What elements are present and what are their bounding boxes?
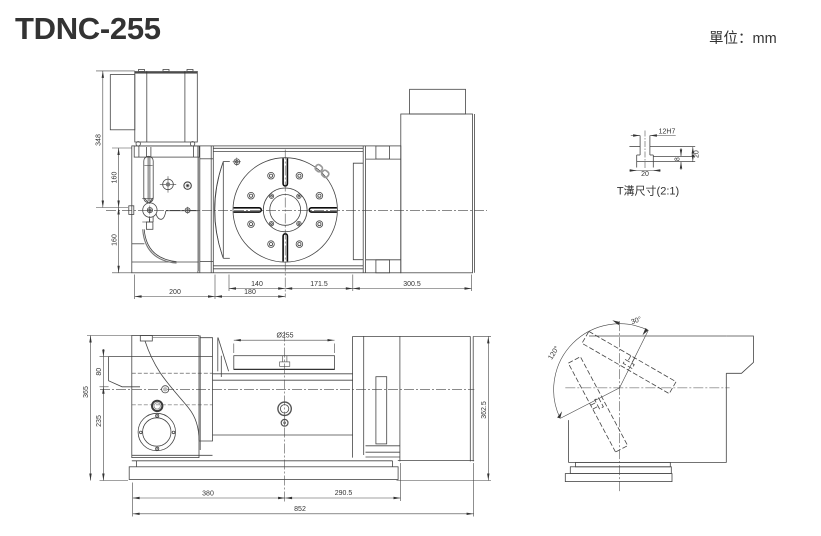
svg-text:單位：mm: 單位：mm <box>709 30 777 47</box>
svg-text:TDNC-255: TDNC-255 <box>15 11 161 46</box>
svg-text:Ø255: Ø255 <box>276 333 293 340</box>
svg-text:235: 235 <box>96 415 103 427</box>
svg-text:852: 852 <box>294 506 306 513</box>
svg-text:140: 140 <box>251 281 263 288</box>
svg-text:160: 160 <box>111 234 118 246</box>
svg-text:20: 20 <box>641 171 649 178</box>
svg-text:300.5: 300.5 <box>403 281 421 288</box>
svg-text:20: 20 <box>694 150 701 158</box>
svg-text:171.5: 171.5 <box>310 281 328 288</box>
svg-text:T溝尺寸(2:1): T溝尺寸(2:1) <box>617 184 679 198</box>
svg-text:365: 365 <box>83 386 90 398</box>
svg-text:180: 180 <box>244 289 256 296</box>
svg-text:380: 380 <box>202 490 214 497</box>
svg-text:200: 200 <box>169 289 181 296</box>
svg-text:290.5: 290.5 <box>335 490 353 497</box>
svg-text:80: 80 <box>96 368 103 376</box>
svg-text:160: 160 <box>111 172 118 184</box>
svg-text:8: 8 <box>674 157 681 161</box>
svg-text:120°: 120° <box>547 345 562 362</box>
svg-text:348: 348 <box>96 134 103 146</box>
svg-text:12H7: 12H7 <box>659 129 676 136</box>
svg-text:362.5: 362.5 <box>481 401 488 419</box>
svg-text:30°: 30° <box>630 315 643 326</box>
